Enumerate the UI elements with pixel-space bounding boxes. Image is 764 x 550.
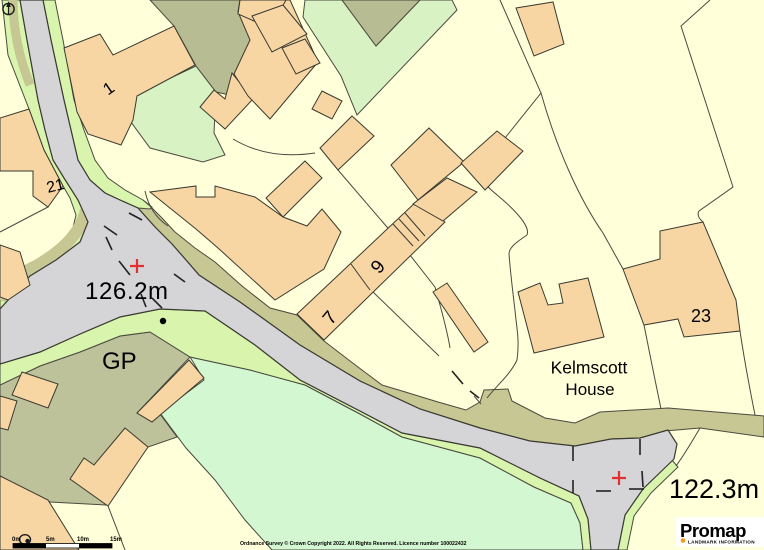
svg-text:15m: 15m	[110, 537, 122, 543]
svg-text:Promap: Promap	[680, 520, 746, 541]
svg-text:5m: 5m	[46, 537, 55, 543]
svg-text:LANDMARK INFORMATION: LANDMARK INFORMATION	[688, 539, 755, 544]
svg-text:23: 23	[691, 306, 711, 326]
svg-text:Kelmscott: Kelmscott	[551, 358, 628, 378]
svg-text:126.2m: 126.2m	[85, 278, 169, 305]
svg-text:Ordnance Survey © Crown Copyri: Ordnance Survey © Crown Copyright 2022. …	[240, 540, 467, 547]
svg-text:House: House	[565, 380, 614, 399]
svg-text:10m: 10m	[77, 537, 89, 543]
svg-text:0m: 0m	[12, 537, 21, 543]
svg-text:122.3m: 122.3m	[669, 474, 759, 504]
svg-text:GP: GP	[102, 348, 137, 375]
